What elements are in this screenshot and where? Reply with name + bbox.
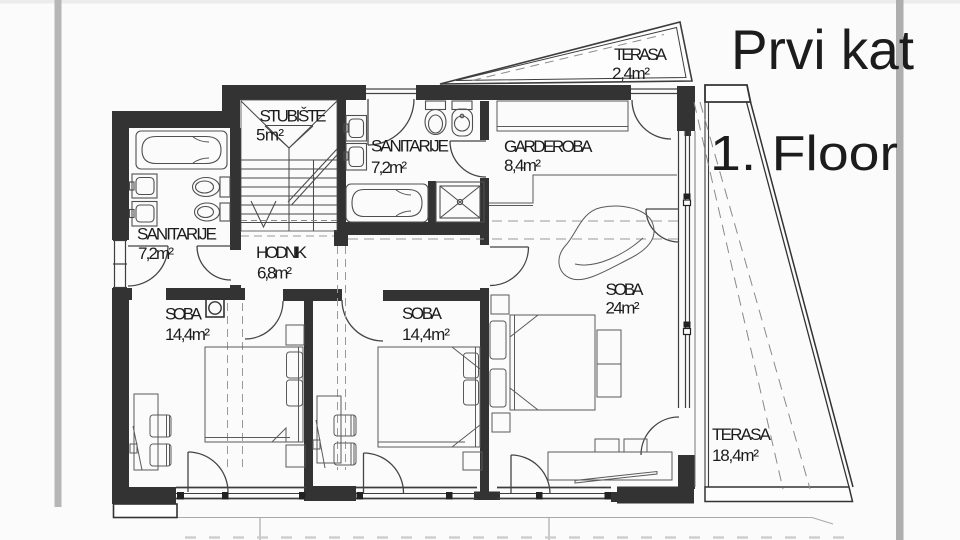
svg-text:Prvi kat: Prvi kat xyxy=(731,18,914,81)
svg-text:1. Floor: 1. Floor xyxy=(710,127,898,181)
svg-text:SOBA: SOBA xyxy=(165,305,203,324)
svg-text:SANITARIJE: SANITARIJE xyxy=(137,225,217,244)
svg-text:GARDEROBA: GARDEROBA xyxy=(504,137,593,156)
svg-text:SOBA: SOBA xyxy=(606,280,645,299)
svg-text:5m²: 5m² xyxy=(256,126,284,145)
svg-text:2,4m²: 2,4m² xyxy=(612,64,650,83)
svg-text:24m²: 24m² xyxy=(606,299,640,318)
svg-text:HODNIK: HODNIK xyxy=(256,243,308,262)
svg-text:SANITARIJE: SANITARIJE xyxy=(371,137,449,156)
svg-text:6,8m²: 6,8m² xyxy=(257,264,292,283)
svg-text:STUBIŠTE: STUBIŠTE xyxy=(260,107,327,126)
svg-text:7,2m²: 7,2m² xyxy=(371,158,407,177)
svg-text:7,2m²: 7,2m² xyxy=(138,244,174,263)
svg-text:SOBA: SOBA xyxy=(402,304,443,323)
svg-text:8,4m²: 8,4m² xyxy=(504,156,541,175)
svg-text:TERASA: TERASA xyxy=(614,45,668,64)
svg-text:14,4m²: 14,4m² xyxy=(165,325,210,344)
svg-text:18,4m²: 18,4m² xyxy=(712,446,759,465)
svg-text:TERASA: TERASA xyxy=(712,425,772,444)
svg-text:14,4m²: 14,4m² xyxy=(402,325,450,344)
